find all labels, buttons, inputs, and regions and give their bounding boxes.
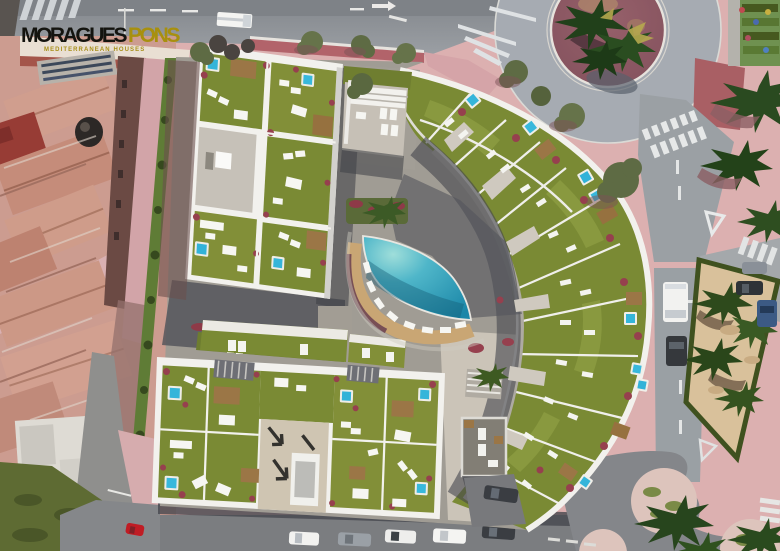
- svg-text:MORAGUES: MORAGUES: [21, 24, 127, 47]
- svg-text:PONS: PONS: [128, 24, 180, 47]
- svg-text:MEDITERRANEAN HOUSES: MEDITERRANEAN HOUSES: [44, 47, 146, 53]
